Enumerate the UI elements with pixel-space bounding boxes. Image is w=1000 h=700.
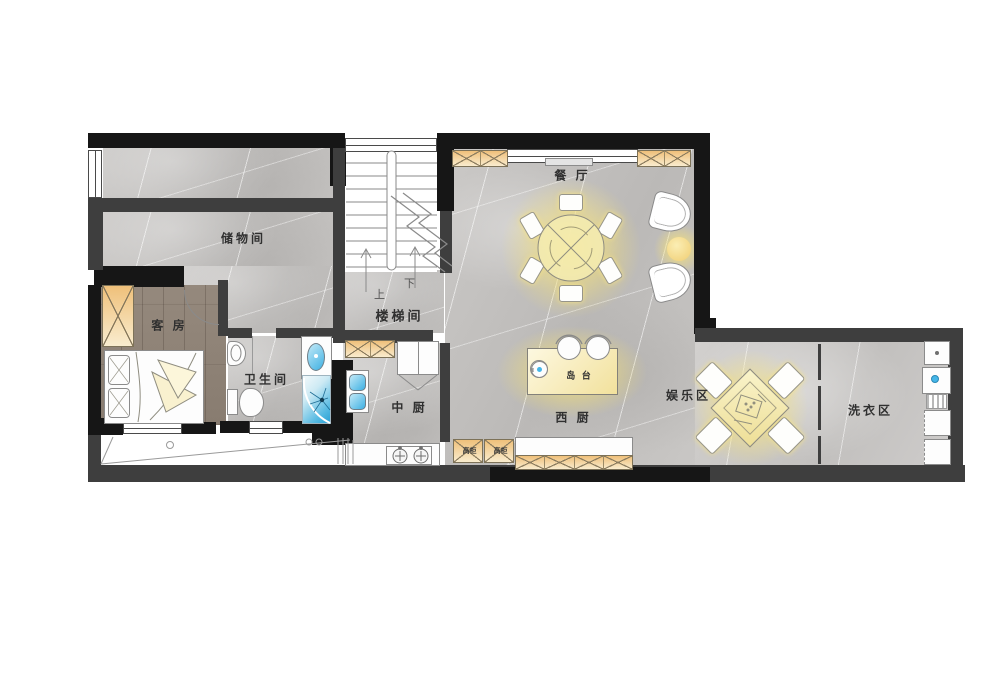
laundry-label: 洗衣区 bbox=[845, 402, 893, 419]
pedestal-sink-bowl bbox=[231, 345, 241, 361]
mahjong-tiles bbox=[734, 394, 766, 424]
shower-icon bbox=[304, 378, 330, 423]
balcony-icon bbox=[101, 437, 353, 464]
bed-blanket-icon bbox=[136, 352, 196, 422]
chinese-kitchen-label: 中 厨 bbox=[388, 399, 427, 416]
stool-backs bbox=[533, 335, 611, 372]
storage-label: 储物间 bbox=[218, 230, 266, 247]
detail-overlay bbox=[0, 0, 1000, 700]
stairwell-label: 楼梯间 bbox=[372, 306, 423, 325]
entertainment-label: 娱乐区 bbox=[663, 387, 711, 404]
pillow-folds bbox=[110, 358, 128, 415]
guest-room-label: 客 房 bbox=[148, 317, 187, 334]
dining-room-label: 餐 厅 bbox=[551, 167, 590, 184]
dining-table-icon bbox=[538, 215, 604, 281]
floor-plan: 高柜 高柜 bbox=[0, 0, 1000, 700]
stair-up-label: 上 bbox=[371, 286, 385, 302]
stair-up-arrow bbox=[361, 249, 371, 292]
stairs-icon bbox=[346, 151, 452, 292]
stair-down-label: 下 bbox=[401, 275, 415, 291]
stove-burners bbox=[393, 447, 428, 463]
western-kitchen-label: 西 厨 bbox=[552, 409, 591, 426]
fridge-doors bbox=[399, 375, 437, 390]
island-label: 岛 台 bbox=[563, 369, 593, 382]
bathroom-label: 卫生间 bbox=[241, 371, 289, 388]
